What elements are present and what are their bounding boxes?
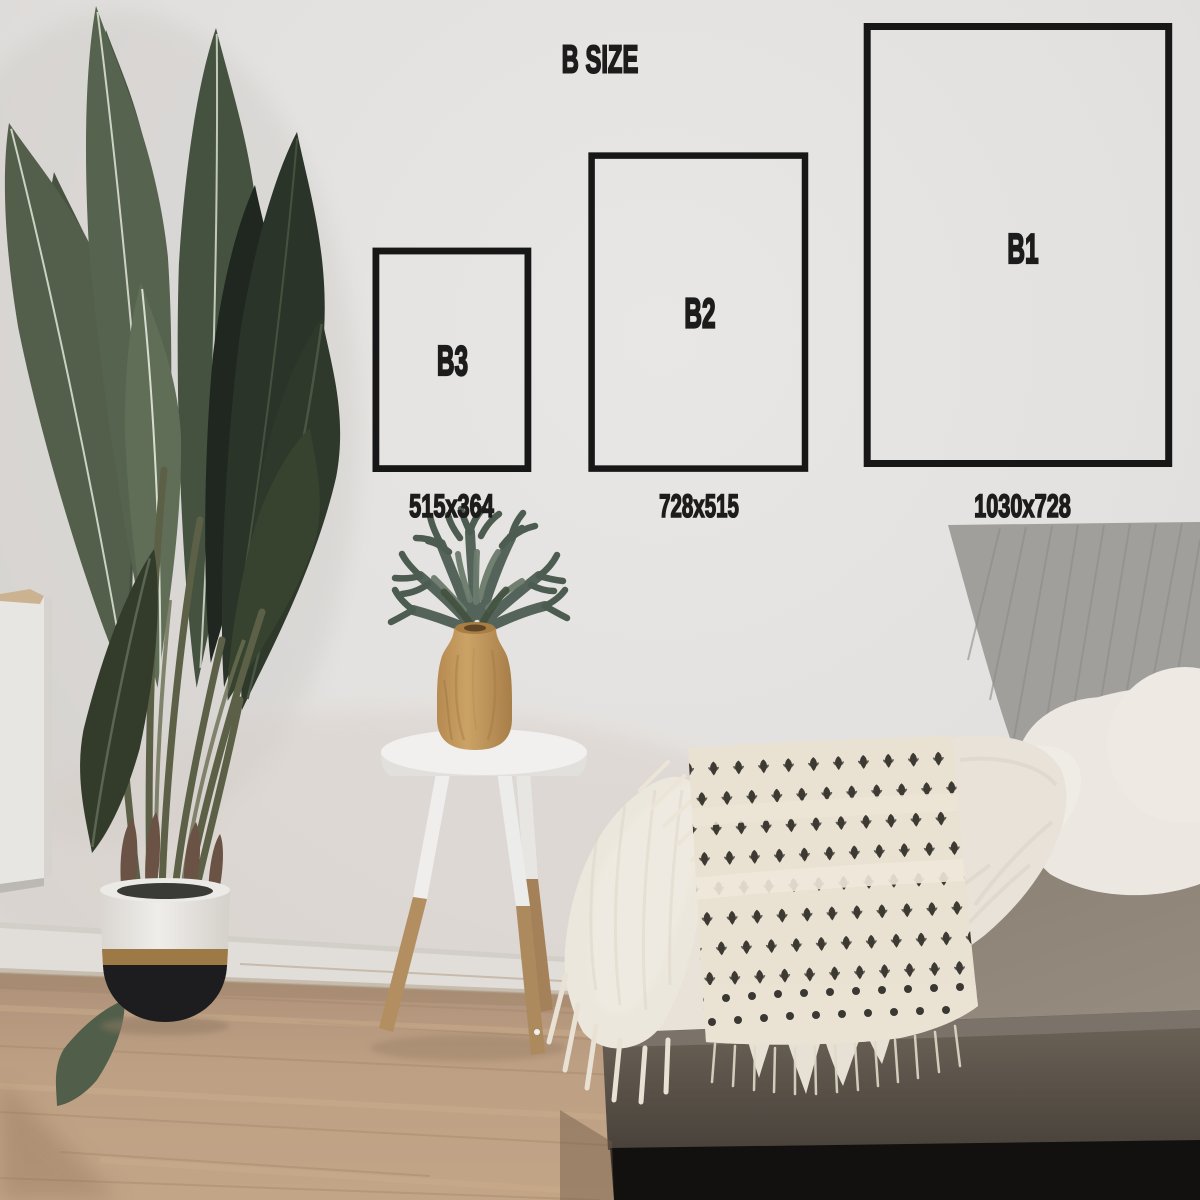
svg-text:515x364: 515x364: [409, 488, 494, 524]
svg-text:1030x728: 1030x728: [974, 488, 1071, 524]
svg-text:B1: B1: [1007, 226, 1038, 272]
svg-text:728x515: 728x515: [659, 488, 739, 524]
svg-text:B2: B2: [684, 291, 715, 337]
svg-text:B SIZE: B SIZE: [562, 37, 639, 80]
svg-text:B3: B3: [437, 338, 468, 384]
